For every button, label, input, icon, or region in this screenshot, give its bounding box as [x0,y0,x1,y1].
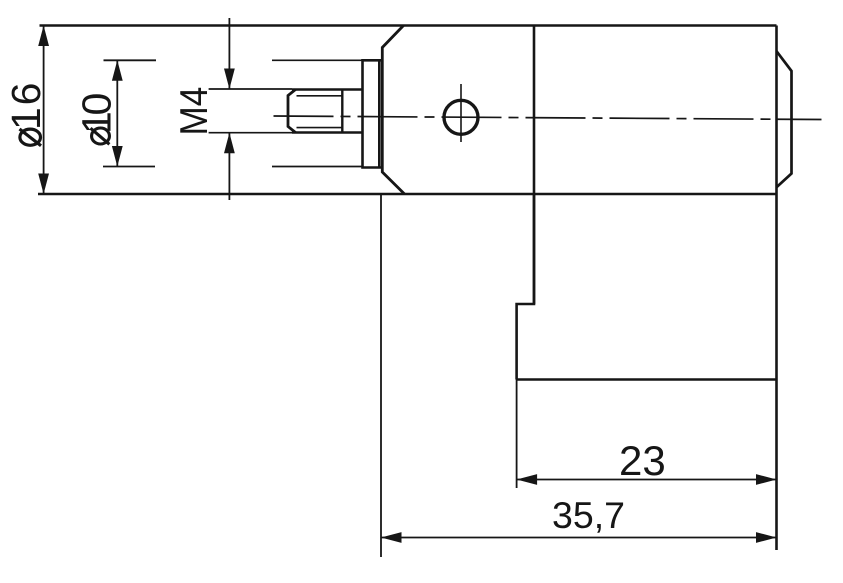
svg-text:35,7: 35,7 [552,494,625,536]
svg-text:M4: M4 [171,87,215,136]
svg-text:6: 6 [3,83,49,106]
svg-text:1: 1 [3,107,49,130]
svg-text:1: 1 [73,111,119,134]
svg-text:23: 23 [619,437,666,484]
